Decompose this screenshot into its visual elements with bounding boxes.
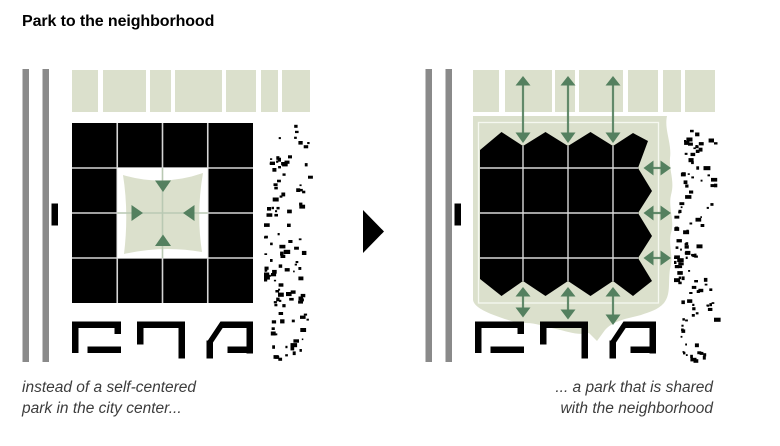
- strip-block: [226, 70, 256, 112]
- strip-block: [555, 70, 575, 112]
- building-footprint: [207, 322, 254, 359]
- left-caption-line1: instead of a self-centered: [22, 379, 196, 396]
- eroded-city-block: [480, 132, 652, 296]
- road-bar: [446, 69, 453, 362]
- diagram-left-self-centered-park: [14, 62, 330, 368]
- transition-arrow-icon: [363, 210, 385, 254]
- strip-block: [473, 70, 499, 112]
- strip-block: [72, 70, 98, 112]
- road-bar: [23, 69, 30, 362]
- building-footprint: [137, 322, 185, 359]
- building-texture-dots: [264, 125, 313, 361]
- right-caption: ... a park that is shared with the neigh…: [555, 377, 713, 419]
- page-title: Park to the neighborhood: [22, 13, 214, 31]
- transit-stop-marker: [52, 204, 59, 226]
- building-footprint: [72, 322, 121, 354]
- building-footprint: [475, 322, 524, 354]
- strip-block: [579, 70, 623, 112]
- left-caption: instead of a self-centered park in the c…: [22, 377, 196, 419]
- strip-block: [663, 70, 681, 112]
- courtyard-buildings: [72, 322, 253, 359]
- green-block-strip: [72, 70, 310, 112]
- left-caption-line2: park in the city center...: [22, 400, 182, 417]
- strip-block: [628, 70, 658, 112]
- strip-block: [175, 70, 222, 112]
- road-bar: [43, 69, 50, 362]
- strip-block: [282, 70, 310, 112]
- road-bar: [426, 69, 433, 362]
- right-caption-line2: with the neighborhood: [560, 400, 713, 417]
- strip-block: [261, 70, 278, 112]
- transit-stop-marker: [455, 204, 462, 226]
- strip-block: [505, 70, 552, 112]
- strip-block: [103, 70, 146, 112]
- courtyard-buildings: [475, 322, 656, 359]
- building-footprint: [540, 322, 588, 359]
- building-footprint: [610, 322, 657, 359]
- strip-block: [685, 70, 715, 112]
- diagram-right-shared-park: [416, 62, 728, 368]
- building-texture-dots: [674, 130, 721, 363]
- right-caption-line1: ... a park that is shared: [555, 379, 713, 396]
- green-block-strip: [473, 70, 715, 112]
- strip-block: [150, 70, 171, 112]
